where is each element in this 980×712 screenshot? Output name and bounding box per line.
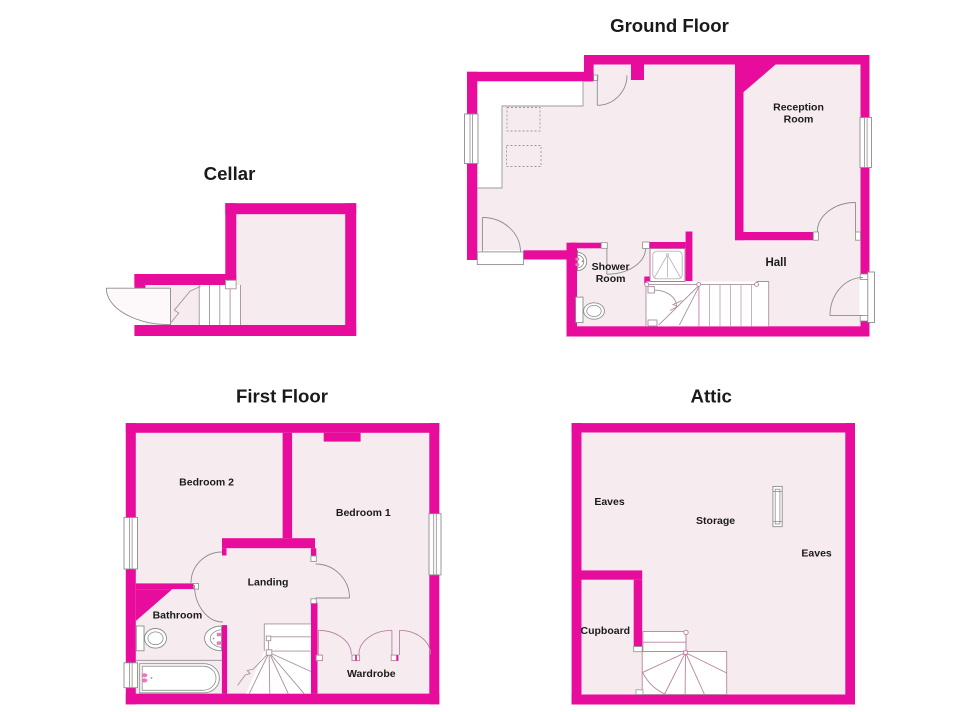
svg-text:Cellar: Cellar: [204, 163, 256, 184]
svg-text:Bathroom: Bathroom: [153, 610, 203, 622]
svg-text:Reception: Reception: [773, 102, 824, 114]
svg-text:Hall: Hall: [765, 257, 786, 269]
svg-text:Landing: Landing: [248, 576, 289, 588]
svg-text:Storage: Storage: [696, 515, 735, 527]
svg-text:Shower: Shower: [592, 261, 630, 273]
svg-text:Bedroom 2: Bedroom 2: [179, 476, 234, 488]
svg-text:Eaves: Eaves: [594, 496, 625, 508]
svg-text:First Floor: First Floor: [236, 386, 328, 407]
svg-text:Room: Room: [596, 273, 626, 285]
svg-text:Ground Floor: Ground Floor: [610, 15, 729, 36]
svg-text:Bedroom 1: Bedroom 1: [336, 507, 391, 519]
svg-text:Room: Room: [784, 114, 814, 126]
svg-text:Cupboard: Cupboard: [581, 625, 631, 637]
svg-text:Attic: Attic: [691, 386, 732, 407]
svg-text:Wardrobe: Wardrobe: [347, 668, 396, 680]
svg-text:Eaves: Eaves: [801, 548, 832, 560]
